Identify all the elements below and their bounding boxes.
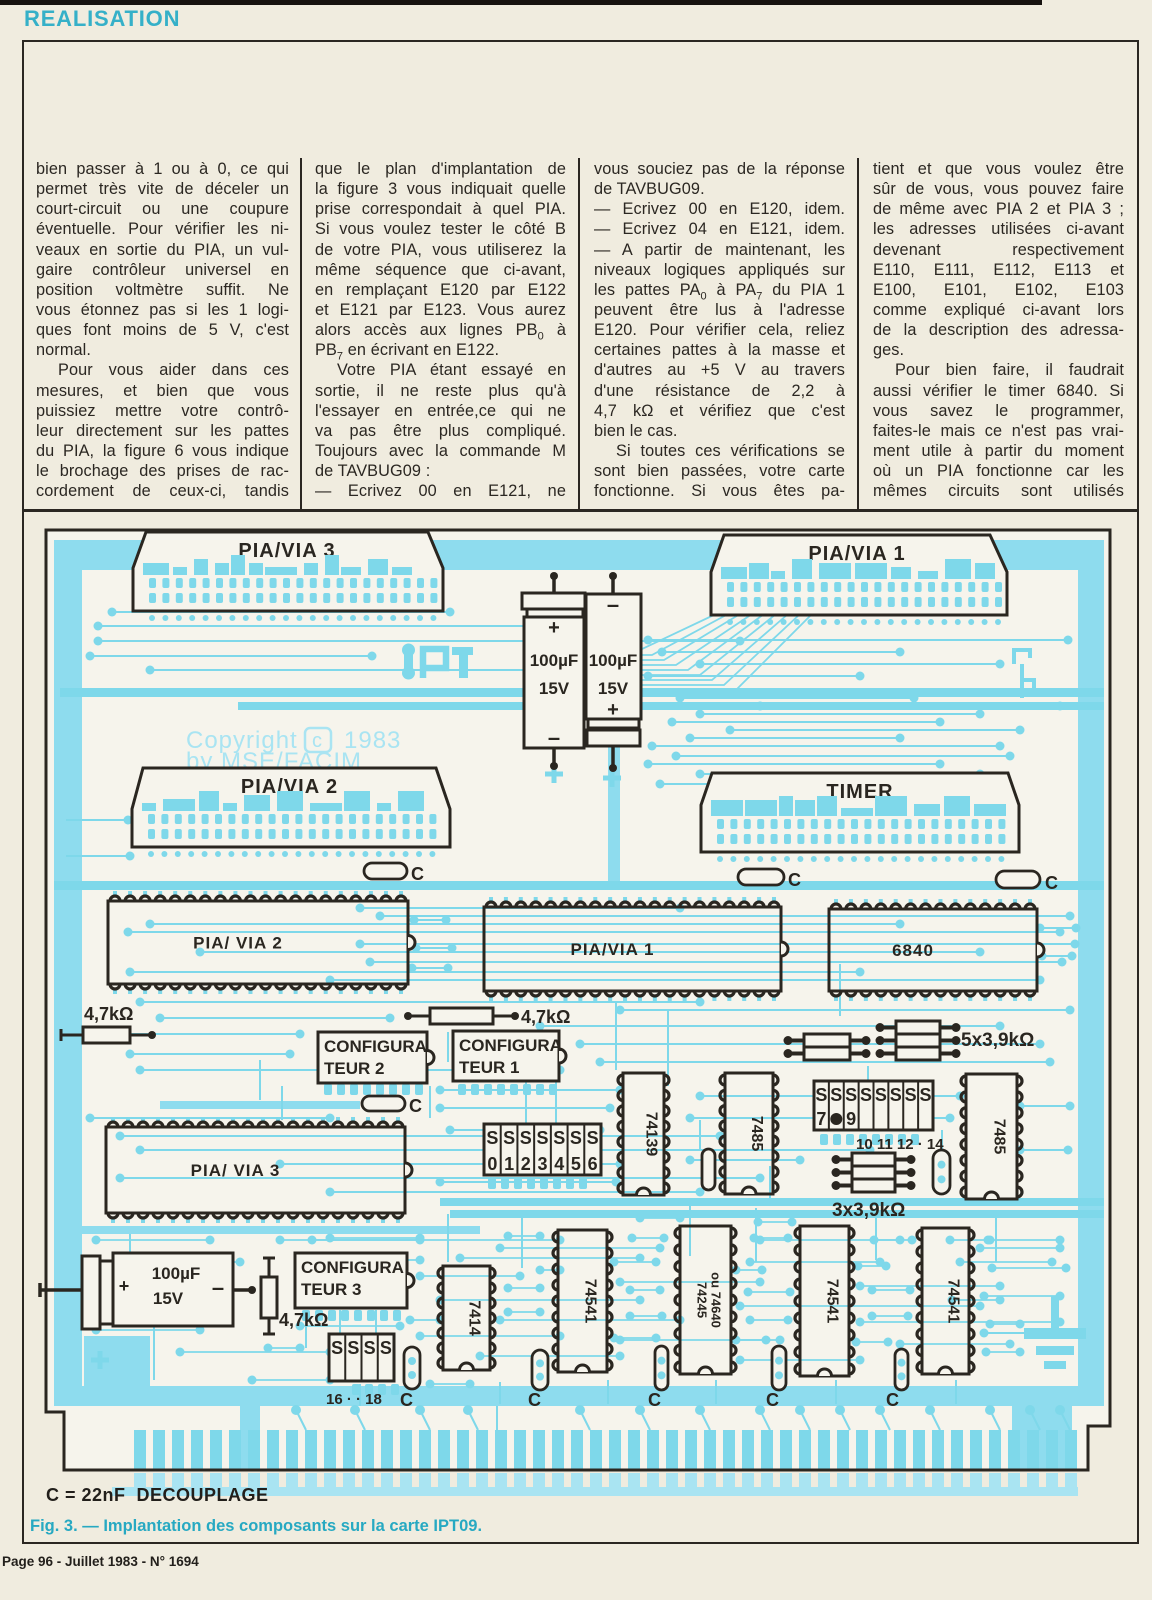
svg-text:CONFIGURA: CONFIGURA (301, 1258, 404, 1277)
svg-text:PIA/VIA 1: PIA/VIA 1 (571, 940, 655, 959)
svg-text:S: S (587, 1128, 599, 1148)
svg-text:TEUR 2: TEUR 2 (324, 1059, 384, 1078)
svg-text:S: S (347, 1338, 359, 1358)
svg-text:TEUR 3: TEUR 3 (301, 1280, 361, 1299)
svg-text:15V: 15V (539, 679, 570, 698)
svg-text:74245: 74245 (695, 1282, 710, 1318)
svg-text:3: 3 (537, 1154, 547, 1174)
svg-text:5: 5 (571, 1154, 581, 1174)
svg-text:7414: 7414 (466, 1300, 483, 1336)
svg-text:S: S (380, 1338, 392, 1358)
svg-text:4,7kΩ: 4,7kΩ (521, 1007, 570, 1027)
svg-text:100µF: 100µF (152, 1264, 201, 1283)
svg-text:+: + (548, 617, 560, 639)
svg-text:5x3,9kΩ: 5x3,9kΩ (961, 1030, 1034, 1051)
svg-text:10 11 12 · 14: 10 11 12 · 14 (856, 1136, 944, 1153)
svg-text:S: S (830, 1085, 842, 1105)
svg-text:100µF: 100µF (530, 651, 579, 670)
svg-text:74139: 74139 (643, 1112, 660, 1157)
svg-text:C: C (788, 870, 801, 890)
svg-text:S: S (905, 1085, 917, 1105)
svg-text:1: 1 (504, 1154, 514, 1174)
svg-text:6: 6 (588, 1154, 598, 1174)
svg-text:PIA/ VIA 3: PIA/ VIA 3 (191, 1161, 281, 1180)
svg-text:74541: 74541 (824, 1279, 841, 1324)
svg-text:4: 4 (554, 1154, 564, 1174)
svg-text:7485: 7485 (991, 1119, 1008, 1155)
svg-text:100µF: 100µF (589, 651, 638, 670)
svg-text:S: S (890, 1085, 902, 1105)
svg-text:S: S (860, 1085, 872, 1105)
svg-text:CONFIGURA: CONFIGURA (324, 1037, 427, 1056)
svg-text:C: C (528, 1390, 541, 1410)
svg-text:+: + (607, 699, 619, 721)
svg-text:PIA/VIA 3: PIA/VIA 3 (238, 540, 335, 562)
svg-text:C: C (1045, 873, 1058, 893)
svg-text:C: C (400, 1390, 413, 1410)
svg-text:3x3,9kΩ: 3x3,9kΩ (832, 1200, 905, 1221)
svg-text:15V: 15V (598, 679, 629, 698)
svg-text:16 · · 18: 16 · · 18 (326, 1391, 382, 1408)
svg-text:C: C (409, 1096, 422, 1116)
svg-text:S: S (520, 1128, 532, 1148)
svg-text:S: S (845, 1085, 857, 1105)
svg-text:7: 7 (816, 1109, 826, 1129)
svg-text:7485: 7485 (748, 1116, 765, 1152)
svg-text:S: S (920, 1085, 932, 1105)
svg-text:S: S (364, 1338, 376, 1358)
svg-text:PIA/ VIA 2: PIA/ VIA 2 (193, 934, 283, 953)
svg-text:+: + (119, 1276, 130, 1296)
svg-text:9: 9 (846, 1109, 856, 1129)
svg-text:C: C (648, 1390, 661, 1410)
svg-text:S: S (486, 1128, 498, 1148)
svg-text:S: S (570, 1128, 582, 1148)
svg-text:6840: 6840 (892, 941, 934, 960)
svg-text:4,7kΩ: 4,7kΩ (279, 1310, 328, 1330)
svg-text:CONFIGURA: CONFIGURA (459, 1036, 562, 1055)
svg-text:S: S (503, 1128, 515, 1148)
svg-text:2: 2 (521, 1154, 531, 1174)
svg-text:C: C (886, 1390, 899, 1410)
svg-text:–: – (548, 725, 560, 750)
svg-text:S: S (331, 1338, 343, 1358)
svg-text:–: – (212, 1275, 224, 1300)
svg-text:0: 0 (487, 1154, 497, 1174)
svg-text:–: – (607, 592, 619, 617)
svg-text:15V: 15V (153, 1289, 184, 1308)
svg-text:S: S (815, 1085, 827, 1105)
svg-text:S: S (875, 1085, 887, 1105)
svg-text:C: C (411, 864, 424, 884)
svg-text:4,7kΩ: 4,7kΩ (84, 1004, 133, 1024)
svg-text:S: S (536, 1128, 548, 1148)
svg-text:PIA/VIA 1: PIA/VIA 1 (808, 543, 905, 565)
svg-text:ou 74640: ou 74640 (709, 1272, 724, 1328)
svg-text:C: C (766, 1390, 779, 1410)
svg-text:74541: 74541 (582, 1279, 599, 1324)
svg-text:S: S (553, 1128, 565, 1148)
svg-text:TEUR 1: TEUR 1 (459, 1058, 519, 1077)
svg-text:74541: 74541 (945, 1279, 962, 1324)
